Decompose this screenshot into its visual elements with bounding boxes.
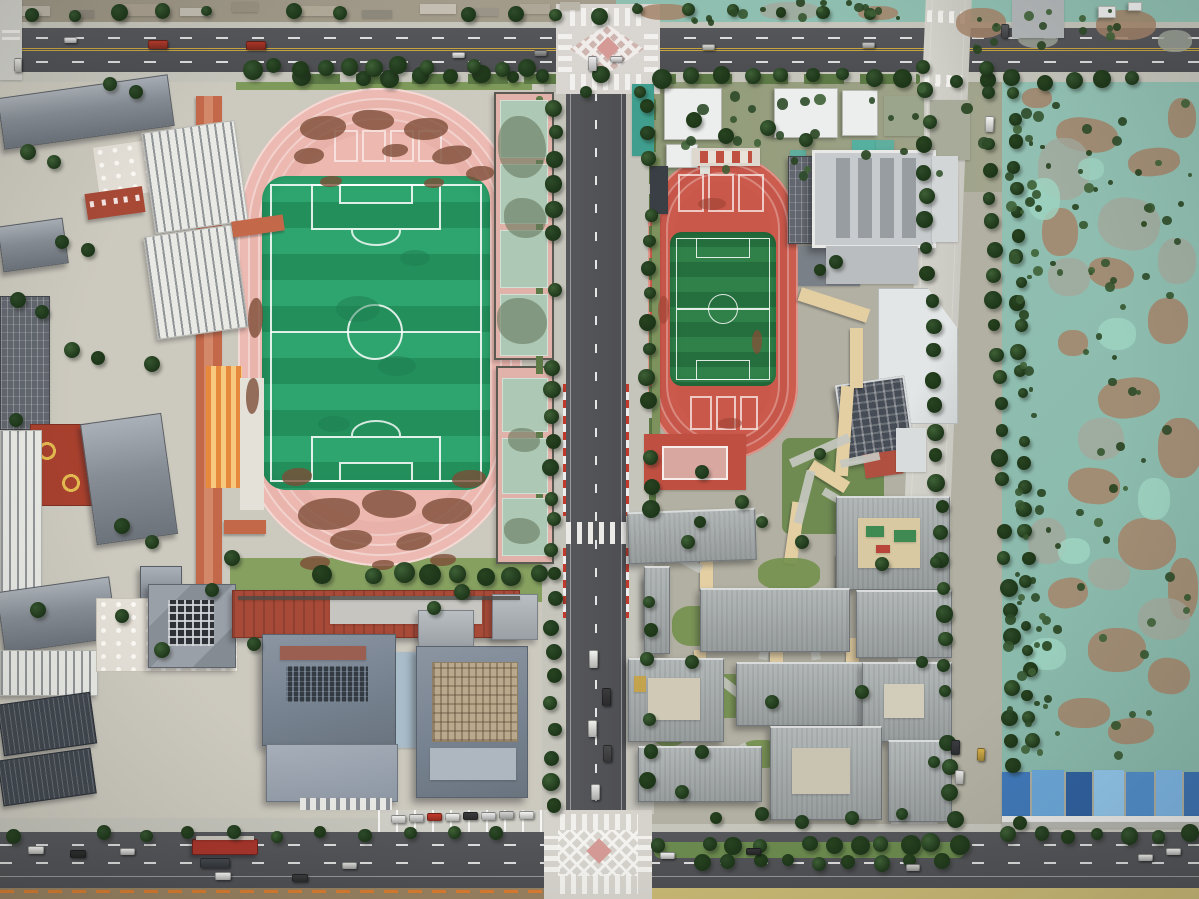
vehicle (215, 872, 231, 880)
shrub (1146, 710, 1152, 716)
tree (642, 500, 660, 518)
tree (547, 668, 562, 683)
clutter-element (1066, 772, 1092, 816)
tree (718, 128, 734, 144)
shrub (1043, 704, 1047, 708)
clutter-element (1002, 772, 1030, 816)
tree (247, 637, 261, 651)
tree (641, 151, 655, 165)
tree (916, 165, 932, 181)
grayP-element (1138, 598, 1190, 640)
tree (81, 243, 95, 257)
clutter-element (1032, 770, 1064, 816)
tree (756, 516, 768, 528)
clutter-element (932, 156, 958, 242)
tree (1035, 826, 1049, 840)
shrub (1037, 489, 1046, 498)
central-road-edge-line (621, 92, 622, 814)
tree (916, 211, 933, 228)
shrub (1162, 425, 1172, 435)
shrub (1109, 484, 1118, 493)
tree (874, 855, 891, 872)
vehicle (951, 740, 961, 755)
tree (644, 744, 658, 758)
shrub (1050, 261, 1056, 267)
shrub (1031, 249, 1039, 257)
tree (814, 264, 826, 276)
clutter-element (396, 652, 416, 748)
vehicle (342, 862, 357, 869)
shrub (817, 7, 822, 12)
tree (10, 292, 26, 308)
building-roof (0, 430, 42, 592)
building-roof (266, 744, 398, 802)
tree (103, 77, 117, 91)
shrub (1037, 749, 1044, 756)
tree (989, 348, 1004, 363)
clutter-element (1094, 770, 1124, 816)
clutter-element (876, 545, 890, 553)
brightP-element (1138, 478, 1170, 520)
shrub (1007, 706, 1013, 712)
vehicle (452, 52, 465, 58)
shrub (748, 105, 756, 113)
shrub (1025, 721, 1031, 727)
vehicle (955, 770, 964, 784)
shrub (1084, 183, 1094, 193)
tree (155, 3, 170, 18)
tree (389, 56, 406, 73)
tan-element (850, 328, 863, 388)
tree (806, 68, 819, 81)
clutter-element (232, 2, 258, 12)
shrub (1141, 458, 1146, 463)
tent-element (1128, 2, 1142, 11)
shrub (1034, 642, 1040, 648)
dormitory-building (700, 588, 850, 652)
tree (544, 409, 559, 424)
tree (1093, 70, 1110, 87)
shrub (1184, 594, 1191, 601)
dirtP-element (1022, 88, 1052, 108)
shrub (1079, 27, 1087, 35)
shrub (1018, 594, 1025, 601)
tree (489, 826, 503, 840)
clutter-element (634, 676, 646, 692)
tree (644, 623, 658, 637)
gymlights-element (836, 158, 920, 238)
clutter-element (700, 166, 710, 174)
central-road-crosswalk (566, 522, 626, 544)
tree (893, 69, 912, 88)
shrub (1108, 180, 1113, 185)
tree (549, 125, 563, 139)
right-pitch-penalty-box-top (696, 238, 750, 258)
vehicle (534, 50, 547, 56)
grayP-element (1158, 30, 1192, 52)
tree (919, 266, 935, 282)
shrub (1165, 572, 1175, 582)
clutter-element (430, 748, 516, 780)
tree (776, 7, 787, 18)
shrub (1086, 150, 1093, 157)
vehicle (481, 812, 496, 820)
clutter-element (1126, 772, 1154, 816)
tree (866, 69, 884, 87)
tree (544, 360, 560, 376)
tree (988, 319, 1000, 331)
aerial-photo-scene (0, 0, 1199, 899)
shrub (1046, 163, 1051, 168)
tree (145, 535, 159, 549)
shrub (1083, 349, 1089, 355)
shrub (730, 9, 738, 17)
shrub (1029, 387, 1034, 392)
tree (765, 695, 779, 709)
shrub (776, 131, 784, 139)
shrub (1027, 180, 1037, 190)
shrub (733, 136, 743, 146)
vehicle (906, 864, 920, 871)
dirtP-element (1058, 698, 1110, 728)
shrub (1116, 442, 1125, 451)
tree (685, 655, 699, 669)
tree (836, 68, 848, 80)
vehicle (14, 58, 22, 72)
tree (35, 305, 49, 319)
shrub (796, 0, 804, 7)
vehicle (292, 874, 308, 882)
tree (640, 652, 654, 666)
vehicle (977, 748, 985, 761)
shrub (1111, 721, 1121, 731)
tree (694, 854, 711, 871)
tree (802, 836, 817, 851)
tree (224, 550, 240, 566)
right-pitch-penalty-box-bottom (696, 360, 750, 380)
tree (782, 854, 794, 866)
shrub (1013, 125, 1022, 134)
shrub (1035, 505, 1044, 514)
tree (933, 525, 948, 540)
tree (829, 255, 843, 269)
grassP-element (758, 558, 820, 590)
shrub (918, 85, 926, 93)
courtWorn-element (504, 518, 540, 544)
vehicle (445, 813, 460, 821)
shrub (978, 137, 990, 149)
tree (544, 751, 559, 766)
shrub (1025, 197, 1035, 207)
shrub (1020, 362, 1026, 368)
tree (47, 155, 61, 169)
shrub (1076, 509, 1084, 517)
tree (644, 479, 660, 495)
tree (916, 60, 930, 74)
tree (548, 591, 563, 606)
vehicle (1166, 848, 1181, 855)
shrub (1006, 201, 1017, 212)
tree (926, 319, 942, 335)
shrub (973, 45, 982, 54)
tree (683, 67, 699, 83)
shrub (1129, 711, 1136, 718)
tree (64, 342, 80, 358)
tree (982, 86, 995, 99)
vehicle (1138, 854, 1153, 861)
top-intersection (556, 4, 660, 94)
tree (991, 449, 1008, 466)
shrub (800, 97, 809, 106)
dormitory-building (736, 662, 864, 726)
tree (851, 836, 870, 855)
shrub (846, 0, 852, 6)
shrub (1016, 295, 1024, 303)
tree (1018, 388, 1028, 398)
tree (467, 59, 481, 73)
tree (755, 807, 769, 821)
courtWorn-element (504, 198, 546, 238)
shrub (896, 16, 900, 20)
tree (1017, 456, 1031, 470)
tree (987, 242, 1003, 258)
tree (292, 61, 310, 79)
tree (115, 609, 129, 623)
tree (1037, 75, 1053, 91)
tree (983, 163, 998, 178)
tree (934, 853, 949, 868)
building-roof (418, 610, 474, 648)
red-white-curb (563, 384, 566, 516)
shrub (722, 165, 731, 174)
tree (543, 620, 559, 636)
central-road (566, 92, 626, 814)
tree (936, 605, 953, 622)
dormitory-building (856, 590, 952, 658)
darkW-element (318, 416, 350, 432)
shrub (990, 38, 998, 46)
vehicle (427, 813, 442, 821)
clutter-element (560, 2, 580, 10)
vehicle (70, 850, 86, 858)
tree (201, 6, 211, 16)
tree (545, 175, 562, 192)
red-white-curb (626, 384, 629, 516)
shrub (820, 0, 826, 6)
bottom-construction-strip (0, 888, 548, 899)
tree (1021, 621, 1031, 631)
shrub (1031, 413, 1036, 418)
shrub (888, 115, 894, 121)
shrub (1025, 135, 1033, 143)
tree (1152, 830, 1165, 843)
tree (795, 815, 809, 829)
tree (1019, 436, 1030, 447)
tree (333, 6, 347, 20)
tree (643, 450, 658, 465)
tree (1125, 71, 1139, 85)
tree (341, 58, 359, 76)
tree (547, 512, 561, 526)
tree (916, 656, 928, 668)
tree (91, 351, 105, 365)
red-white-curb (563, 548, 566, 618)
vehicle (862, 42, 875, 48)
tree (454, 584, 470, 600)
tree (365, 59, 383, 77)
tree (543, 381, 560, 398)
shrub (869, 97, 875, 103)
shrub (708, 19, 714, 25)
tree (814, 448, 826, 460)
vehicle (588, 56, 597, 71)
building-roof (0, 650, 98, 696)
shrub (1166, 292, 1174, 300)
vehicle (1001, 24, 1009, 38)
walkC-element (224, 520, 266, 534)
shrub (1052, 102, 1059, 109)
clutter-element (280, 646, 366, 660)
shrub (1078, 169, 1083, 174)
tree (745, 68, 761, 84)
right-pitch-center-circle (708, 294, 738, 324)
tree (1015, 319, 1028, 332)
tree (25, 8, 39, 22)
tree (1003, 69, 1019, 85)
shrub (1053, 625, 1061, 633)
tree (542, 773, 560, 791)
shrub (1079, 221, 1087, 229)
shrub (1034, 701, 1040, 707)
tree (923, 115, 937, 129)
tree (773, 68, 788, 83)
clutter-element (196, 836, 254, 840)
building-roof (492, 594, 538, 640)
tree (477, 568, 495, 586)
shrub (1145, 203, 1155, 213)
tree (638, 369, 655, 386)
tree (1009, 134, 1023, 148)
shrub (1046, 9, 1052, 15)
tree (536, 69, 550, 83)
dormitory-building (644, 566, 670, 654)
tree (545, 100, 562, 117)
shrub (900, 148, 908, 156)
tree (720, 854, 735, 869)
tree (997, 551, 1010, 564)
tree (55, 235, 69, 249)
pitch-goal-box-bottom (339, 462, 413, 482)
vehicle (610, 56, 623, 62)
wbox-element (362, 130, 386, 162)
tree (641, 261, 656, 276)
vehicle (28, 846, 44, 854)
central-road-center-dash (595, 92, 597, 814)
clutter-element (420, 4, 456, 14)
tree (930, 556, 942, 568)
shrub (798, 13, 807, 22)
brightP-element (1058, 538, 1090, 564)
wbox-element (690, 396, 712, 430)
shrub (1019, 310, 1029, 320)
tree (984, 213, 999, 228)
crosswalk-east (636, 836, 652, 872)
tree (643, 343, 655, 355)
ticks2-element (700, 151, 752, 163)
shrub (1003, 641, 1014, 652)
tree (1021, 690, 1033, 702)
courtT-element (502, 378, 548, 432)
tree (634, 86, 646, 98)
shrub (1123, 486, 1128, 491)
shrub (777, 98, 788, 109)
tree (154, 642, 170, 658)
tree (640, 392, 657, 409)
clutter-element (1156, 770, 1182, 816)
tree (855, 685, 869, 699)
tree (713, 66, 730, 83)
tree (925, 372, 941, 388)
orange-barrier-fence (0, 890, 548, 893)
tree (920, 242, 932, 254)
tree (695, 465, 709, 479)
shrub (961, 103, 972, 114)
shrub (1094, 518, 1102, 526)
tree (703, 837, 717, 851)
tree (1010, 182, 1024, 196)
tree (97, 825, 111, 839)
vehicle (588, 720, 597, 737)
vehicle (519, 811, 534, 819)
tree (901, 835, 921, 855)
tree (495, 62, 510, 77)
tree (921, 833, 940, 852)
tree (1121, 827, 1138, 844)
vehicle (120, 848, 135, 855)
shrub (738, 9, 748, 19)
tree (69, 10, 81, 22)
tree (845, 811, 859, 825)
brightP-element (1098, 318, 1136, 350)
tree (643, 235, 655, 247)
shrub (791, 157, 798, 164)
darkW-element (336, 296, 380, 322)
tree (754, 854, 767, 867)
shrub (912, 113, 919, 120)
vehicle (660, 852, 675, 859)
tree (996, 424, 1008, 436)
tree (929, 448, 942, 461)
shrub (1155, 160, 1161, 166)
tree (1004, 734, 1018, 748)
clutter-element (896, 428, 926, 472)
darkW-element (400, 250, 430, 266)
tree (548, 567, 560, 579)
tree (735, 495, 749, 509)
shrub (799, 171, 809, 181)
tree (580, 86, 592, 98)
tree (546, 151, 563, 168)
ticksW-element (300, 798, 392, 810)
tan-element (700, 558, 713, 590)
tree (545, 492, 558, 505)
grayP-element (1158, 238, 1196, 284)
vehicle (246, 41, 266, 50)
tree (461, 7, 476, 22)
tree (546, 644, 562, 660)
dirtP-element (1148, 298, 1188, 344)
tree (30, 602, 46, 618)
